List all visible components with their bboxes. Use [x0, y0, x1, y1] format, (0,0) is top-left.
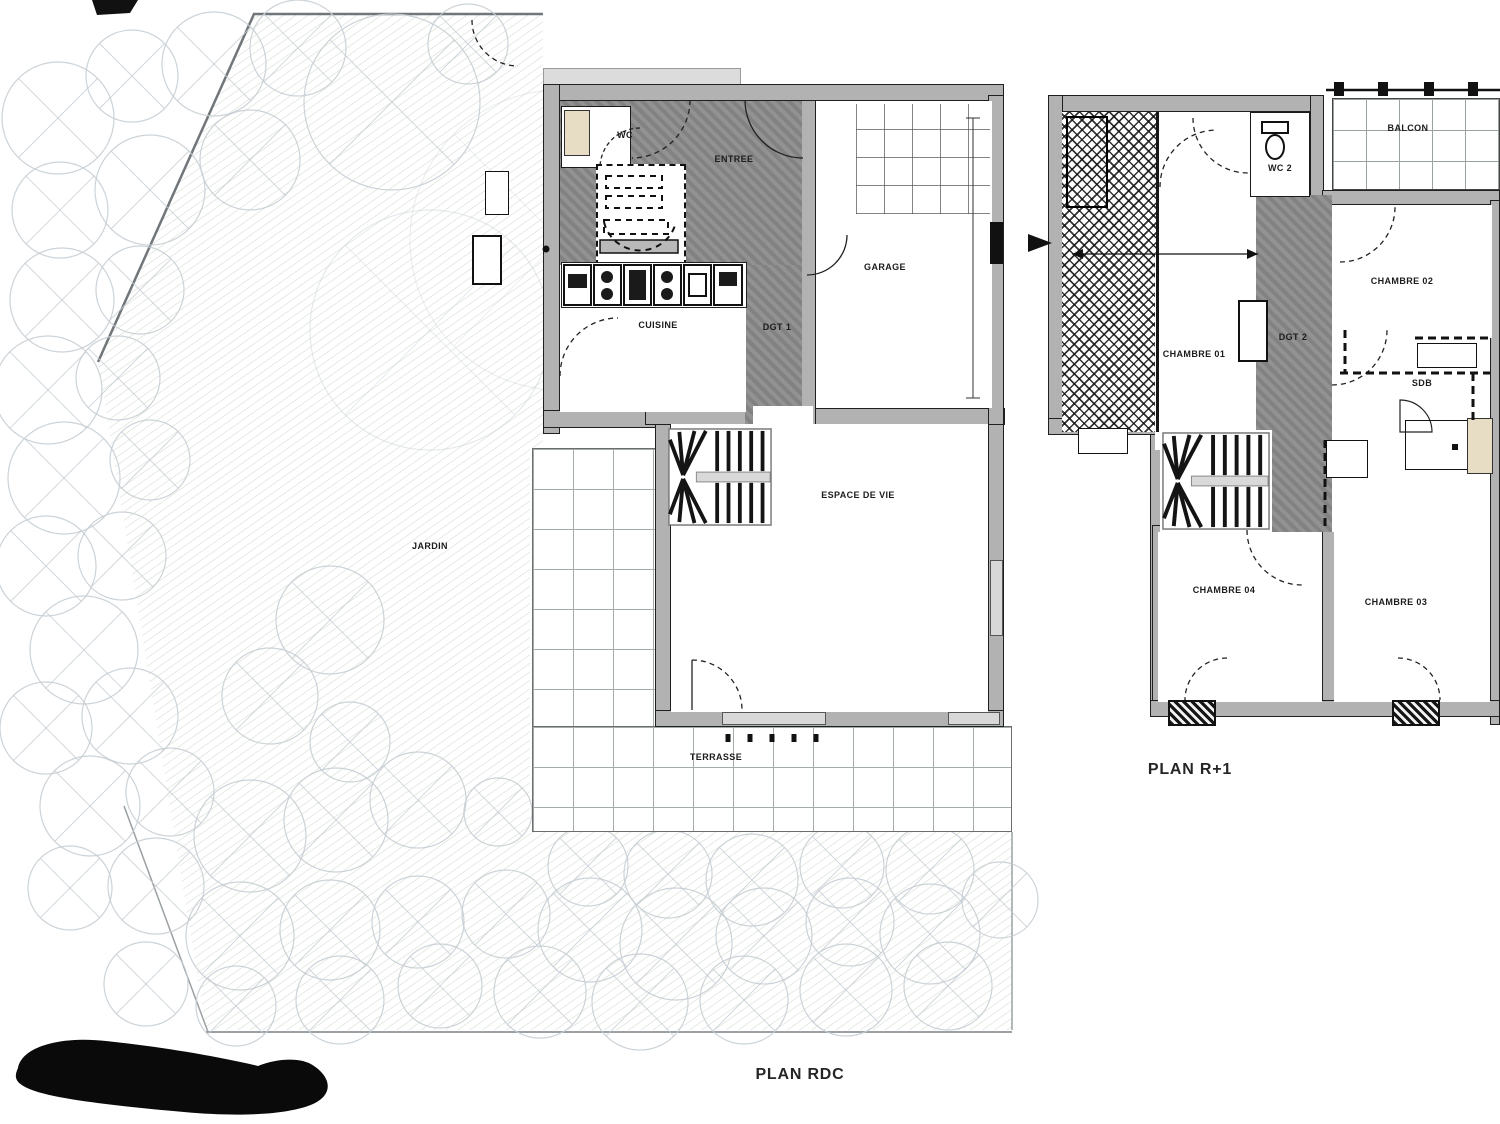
rdc-wall-edv-left	[655, 424, 671, 726]
r1-roof-void-box	[1066, 116, 1108, 208]
r1-stair-area	[1160, 430, 1272, 532]
room-label-cuisine: CUISINE	[626, 321, 690, 330]
room-label-dgt1: DGT 1	[752, 323, 802, 332]
r1-sdb-bathtub	[1467, 418, 1493, 474]
r1-sdb-fixture-top	[1417, 343, 1477, 368]
r1-wall-top	[1048, 95, 1322, 112]
r1-window-ch03	[1392, 700, 1440, 726]
r1-hall-left-partition	[1156, 112, 1159, 432]
r1-sdb-fixture-left	[1326, 440, 1368, 478]
room-label-balcon: BALCON	[1380, 124, 1436, 133]
rdc-outside-planter-1	[485, 171, 509, 215]
r1-closet-fixture	[1238, 300, 1268, 362]
rdc-wall-top	[543, 84, 1004, 101]
rdc-window-east	[990, 560, 1003, 636]
plan-r1-title: PLAN R+1	[1090, 761, 1290, 779]
room-label-sdb: SDB	[1402, 379, 1442, 388]
r1-wall-balcony-left	[1310, 95, 1324, 205]
room-label-entree: ENTREE	[702, 155, 766, 164]
room-label-garage: GARAGE	[850, 263, 920, 272]
r1-balcon-tiles	[1332, 98, 1500, 190]
rdc-terrasse-tiles-bottom	[532, 726, 1012, 832]
r1-sdb-washbasin	[1405, 420, 1469, 470]
rdc-wc-fixture	[564, 110, 590, 156]
r1-window-ch04	[1168, 700, 1216, 726]
rdc-espace-de-vie-room	[671, 424, 988, 712]
room-label-dgt2: DGT 2	[1268, 333, 1318, 342]
rdc-kitchen-counter	[561, 262, 747, 308]
room-label-jardin: JARDIN	[370, 542, 490, 551]
rdc-dgt1-hatch	[745, 265, 802, 425]
r1-ledge	[1078, 428, 1128, 454]
room-label-chambre04: CHAMBRE 04	[1180, 586, 1268, 595]
r1-sdb-drain	[1452, 444, 1458, 450]
rdc-garage-floor-grid	[856, 104, 990, 214]
room-label-espace-de-vie: ESPACE DE VIE	[798, 491, 918, 500]
rdc-wall-left	[543, 84, 560, 434]
r1-chambre03-room	[1334, 532, 1490, 702]
r1-chambre02-room	[1332, 205, 1492, 338]
r1-wall-balcony-bottom	[1322, 190, 1500, 205]
rdc-window-small	[948, 712, 1000, 725]
rdc-wall-garage-left	[800, 100, 816, 425]
room-label-chambre03: CHAMBRE 03	[1352, 598, 1440, 607]
room-label-wc2: WC 2	[1258, 164, 1302, 173]
floor-plan-document: JARDIN WC ENTREE CUISINE DGT 1 GARAGE ES…	[0, 0, 1500, 1124]
r1-wc2-room	[1250, 112, 1310, 197]
r1-chambre04-room	[1158, 532, 1322, 702]
rdc-garage-side-door	[990, 222, 1003, 264]
room-label-wc: WC	[605, 131, 645, 140]
rdc-laundry-closet	[596, 164, 686, 266]
room-label-terrasse: TERRASSE	[678, 753, 754, 762]
rdc-mid-opening	[753, 406, 813, 427]
room-label-chambre01: CHAMBRE 01	[1152, 350, 1236, 359]
r1-wall-left	[1048, 95, 1063, 435]
rdc-window-bay	[722, 712, 826, 725]
rdc-outside-planter-2	[472, 235, 502, 285]
room-label-chambre02: CHAMBRE 02	[1358, 277, 1446, 286]
plan-rdc-title: PLAN RDC	[700, 1066, 900, 1084]
